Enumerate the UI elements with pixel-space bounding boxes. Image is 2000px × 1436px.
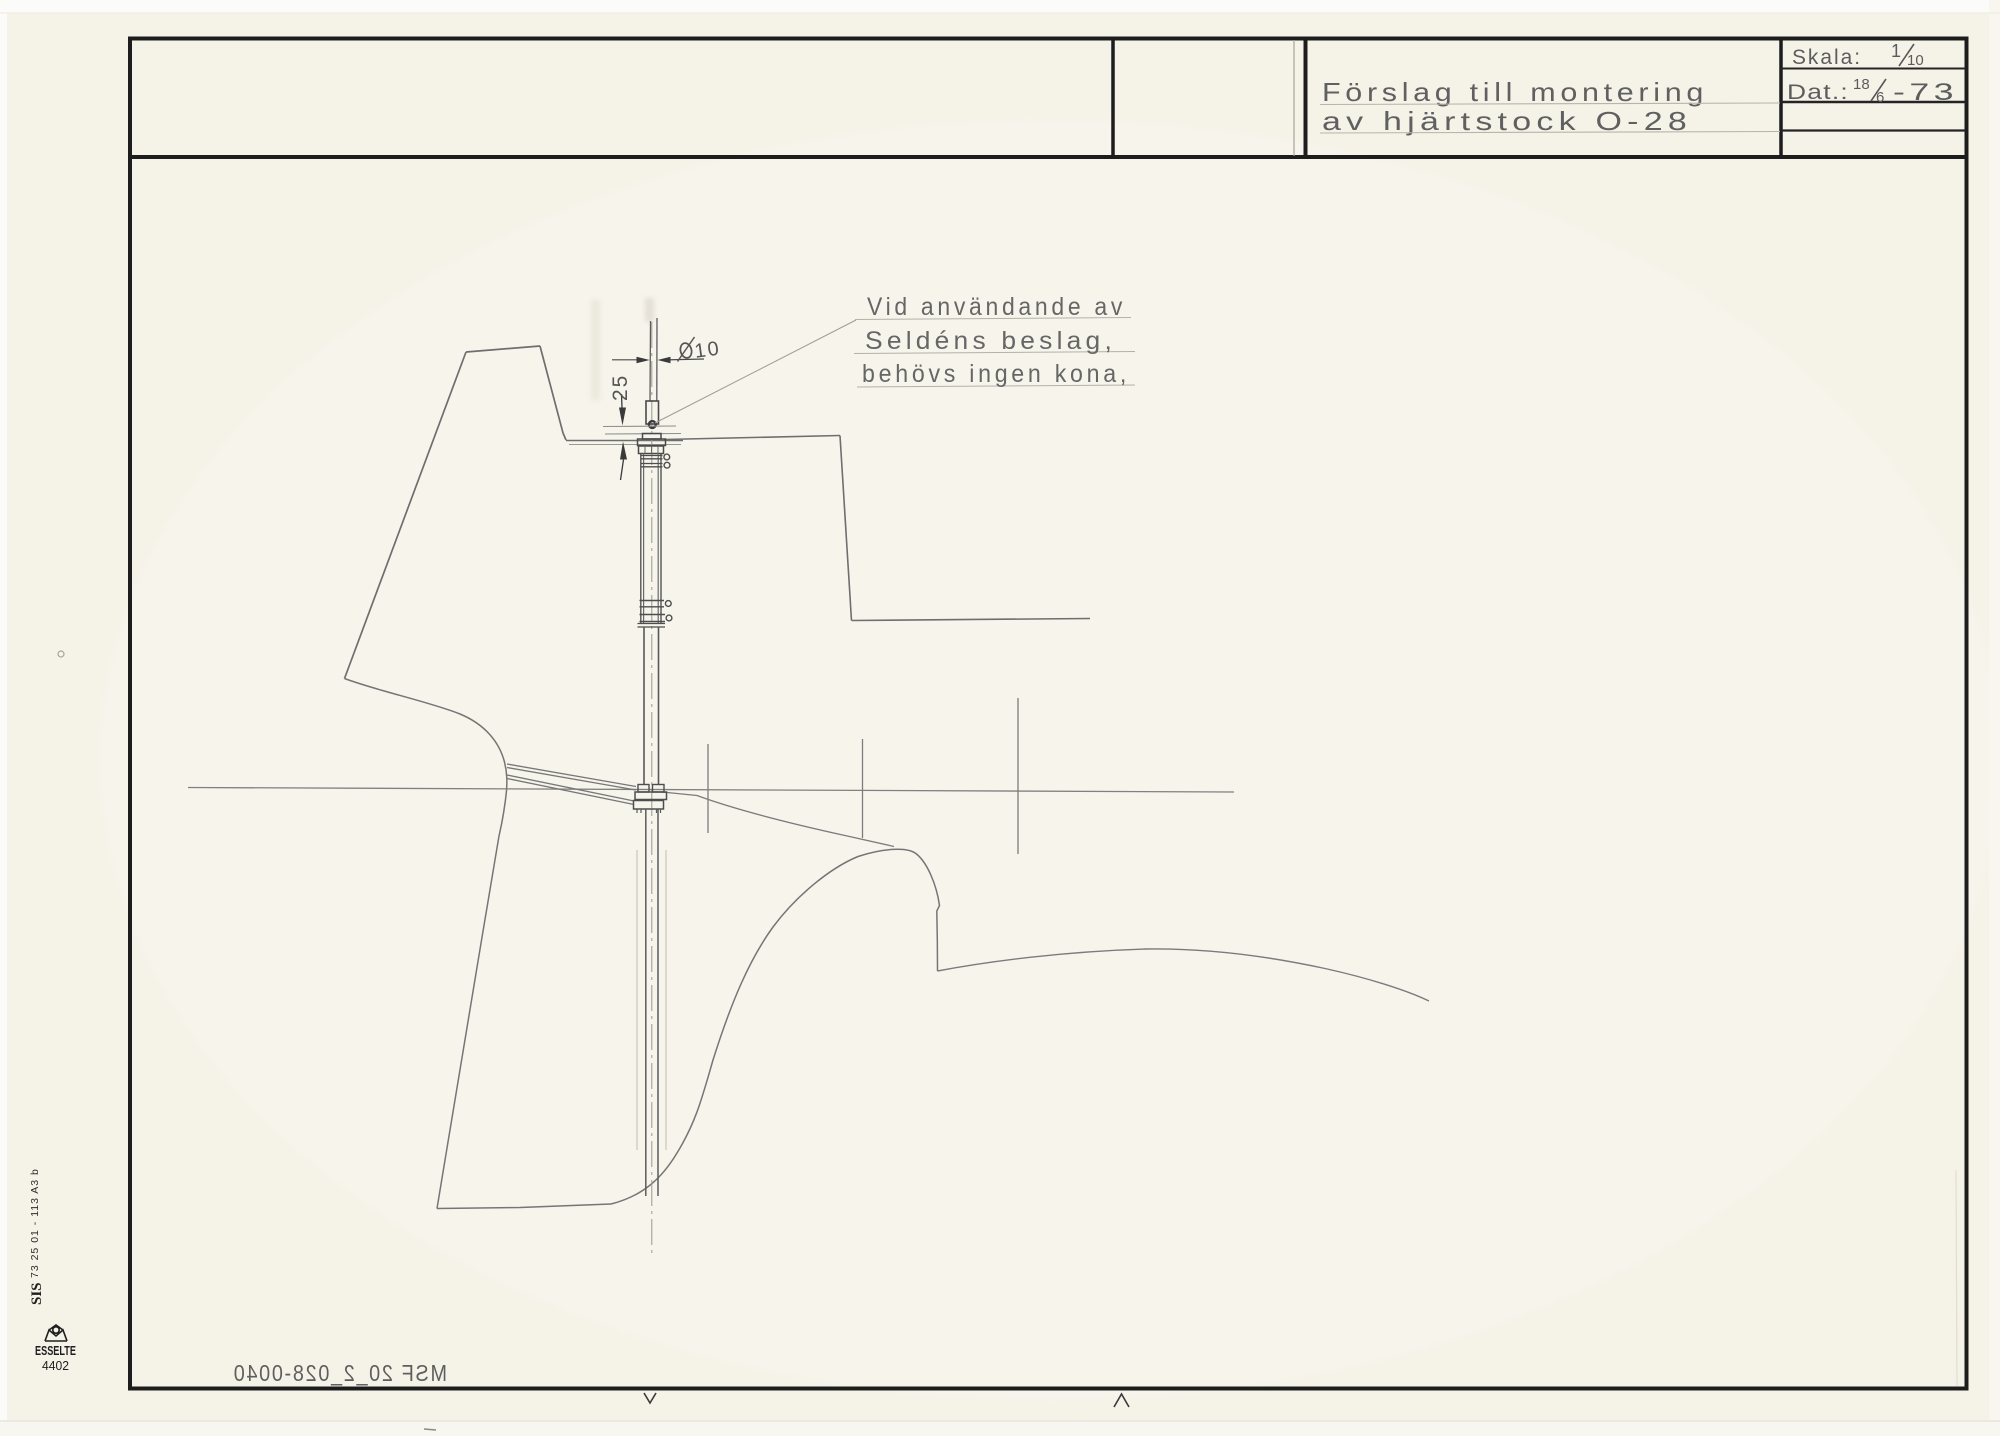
svg-text:Seldéns beslag,: Seldéns beslag, [865,327,1116,355]
svg-text:behövs ingen kona,: behövs ingen kona, [862,360,1130,388]
svg-text:MSF 20_2_028-0040: MSF 20_2_028-0040 [232,1360,447,1386]
svg-text:Förslag till montering: Förslag till montering [1322,77,1708,107]
svg-text:Dat.:: Dat.: [1787,81,1849,104]
svg-text:1: 1 [1891,41,1901,61]
svg-text:Vid användande av: Vid användande av [867,293,1126,321]
svg-text:4402: 4402 [42,1358,69,1373]
svg-text:-73: -73 [1893,79,1958,106]
svg-text:Skala:: Skala: [1792,46,1862,69]
svg-text:ESSELTE: ESSELTE [35,1344,76,1358]
svg-text:18: 18 [1853,76,1870,93]
svg-text:10: 10 [1907,52,1924,69]
svg-text:73 25 01 - 113 A3 b: 73 25 01 - 113 A3 b [29,1168,41,1278]
svg-text:SIS: SIS [29,1282,45,1305]
svg-text:25: 25 [609,374,632,401]
svg-text:10: 10 [693,337,722,362]
